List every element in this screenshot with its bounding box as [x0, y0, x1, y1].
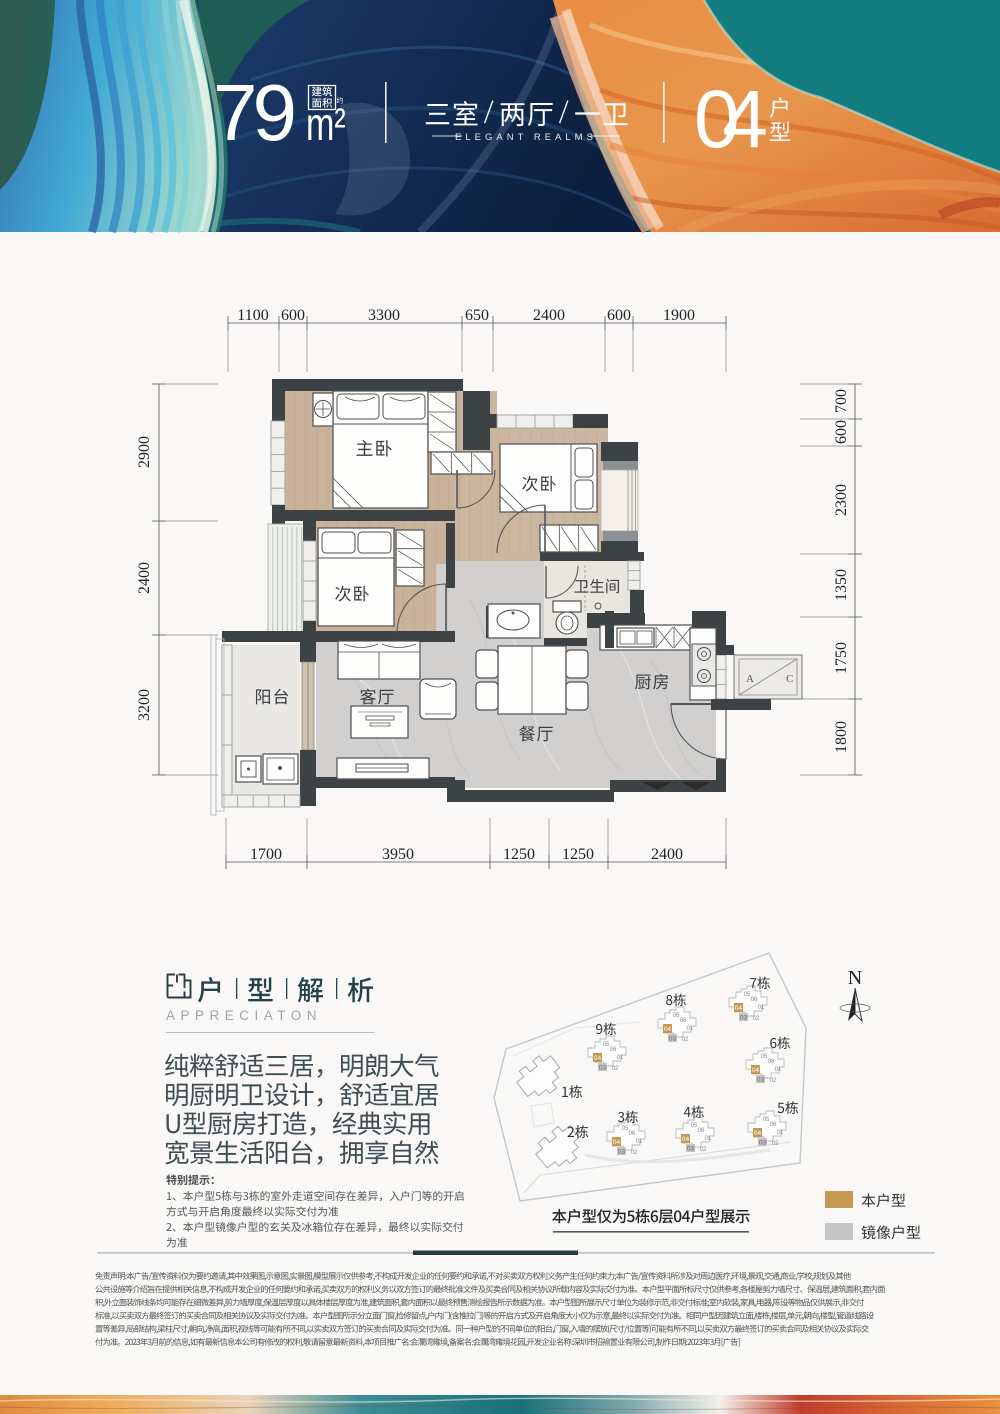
svg-text:01: 01	[758, 1005, 765, 1011]
svg-text:3200: 3200	[136, 689, 153, 721]
svg-text:06: 06	[629, 1131, 636, 1137]
svg-text:C: C	[786, 673, 793, 685]
svg-text:02: 02	[612, 1066, 619, 1072]
svg-text:2400: 2400	[533, 307, 565, 324]
svg-text:m²: m²	[306, 98, 346, 150]
svg-text:3950: 3950	[382, 846, 414, 863]
svg-text:02: 02	[772, 1141, 779, 1147]
svg-text:04: 04	[682, 1136, 690, 1143]
svg-text:03: 03	[757, 1077, 765, 1084]
svg-text:01: 01	[705, 1136, 712, 1142]
svg-text:1800: 1800	[833, 721, 850, 753]
svg-text:01: 01	[617, 1055, 624, 1061]
svg-text:1250: 1250	[503, 846, 535, 863]
svg-text:04: 04	[594, 1055, 602, 1062]
svg-text:03: 03	[759, 1140, 767, 1147]
svg-text:1700: 1700	[250, 846, 282, 863]
svg-text:01: 01	[775, 1067, 782, 1073]
svg-text:N: N	[848, 967, 862, 989]
svg-text:APPRECIATON: APPRECIATON	[166, 1008, 322, 1023]
svg-text:01: 01	[777, 1130, 784, 1136]
svg-text:1350: 1350	[833, 569, 850, 601]
svg-text:1100: 1100	[237, 307, 268, 324]
svg-text:700: 700	[833, 389, 850, 413]
svg-text:600: 600	[833, 420, 850, 444]
svg-text:2400: 2400	[136, 562, 153, 594]
svg-text:03: 03	[740, 1015, 748, 1022]
svg-text:02: 02	[700, 1147, 707, 1153]
svg-text:04: 04	[694, 74, 768, 165]
svg-text:02: 02	[682, 1037, 689, 1043]
svg-text:1750: 1750	[833, 642, 850, 674]
svg-text:06: 06	[770, 1122, 777, 1128]
svg-text:06: 06	[680, 1018, 687, 1024]
svg-text:2900: 2900	[136, 436, 153, 468]
svg-text:1250: 1250	[562, 846, 594, 863]
svg-text:02: 02	[753, 1016, 760, 1022]
svg-text:01: 01	[636, 1139, 643, 1145]
svg-text:02: 02	[770, 1078, 777, 1084]
svg-text:04: 04	[613, 1139, 621, 1146]
svg-text:600: 600	[281, 307, 305, 324]
svg-text:04: 04	[754, 1130, 762, 1137]
svg-text:04: 04	[752, 1067, 760, 1074]
svg-text:ELEGANT REALMS: ELEGANT REALMS	[455, 132, 597, 143]
svg-text:03: 03	[618, 1149, 626, 1156]
svg-text:03: 03	[599, 1065, 607, 1072]
svg-text:04: 04	[735, 1005, 743, 1012]
svg-text:1900: 1900	[663, 307, 695, 324]
svg-text:3300: 3300	[368, 307, 400, 324]
svg-text:79: 79	[213, 68, 297, 157]
svg-text:06: 06	[610, 1047, 617, 1053]
svg-text:03: 03	[687, 1146, 695, 1153]
svg-text:2300: 2300	[833, 484, 850, 516]
svg-text:650: 650	[465, 307, 489, 324]
svg-text:01: 01	[687, 1026, 694, 1032]
svg-text:A: A	[746, 673, 754, 685]
svg-text:06: 06	[751, 997, 758, 1003]
svg-text:600: 600	[607, 307, 631, 324]
svg-text:06: 06	[698, 1128, 705, 1134]
svg-text:06: 06	[768, 1059, 775, 1065]
svg-text:03: 03	[669, 1036, 677, 1043]
svg-text:2400: 2400	[651, 846, 683, 863]
svg-text:02: 02	[631, 1150, 638, 1156]
svg-text:04: 04	[664, 1026, 672, 1033]
